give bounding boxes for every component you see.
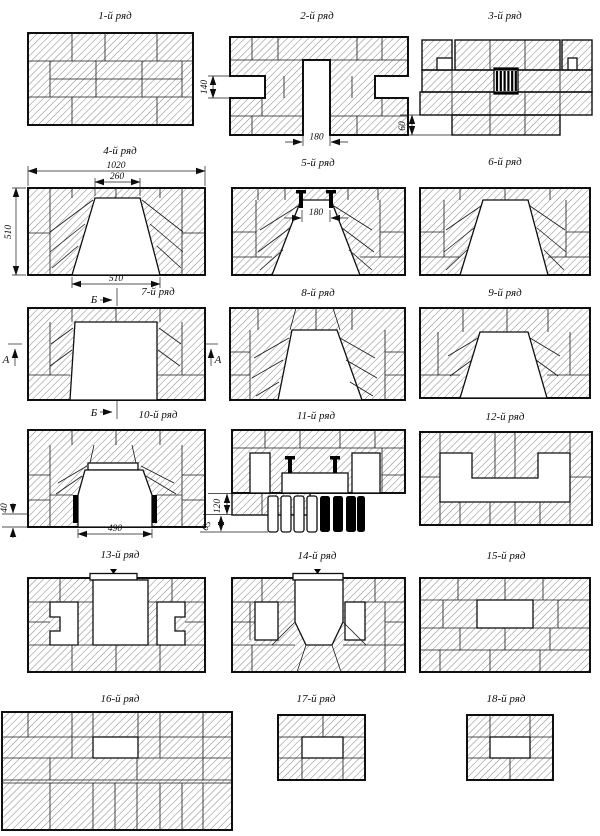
- row-5-panel: 5-й ряд 180: [232, 157, 405, 275]
- dim-140: 140: [200, 76, 230, 98]
- dim-40-text: 40: [0, 503, 10, 513]
- row-13-panel: 13-й ряд: [28, 549, 205, 672]
- row-7-panel: 7-й ряд Б Б А А: [2, 286, 222, 419]
- row-7-opening: [70, 322, 157, 400]
- black-bar: [333, 496, 343, 532]
- anchor-pin: [330, 456, 340, 460]
- section-mark-b-bottom: Б: [90, 400, 117, 419]
- section-a-right-text: А: [214, 354, 222, 366]
- row-15-panel: 15-й ряд: [420, 550, 590, 672]
- white-bar: [281, 496, 291, 532]
- row-16-body: [2, 712, 232, 830]
- dim-60-text: 60: [398, 121, 408, 131]
- dim-180-pins-text: 180: [309, 208, 324, 218]
- row-6-label: 6-й ряд: [488, 156, 522, 168]
- row-13-label: 13-й ряд: [101, 549, 140, 561]
- row-3-panel: 3-й ряд 60: [395, 10, 592, 135]
- row-16-label: 16-й ряд: [101, 693, 140, 705]
- anchor-pin: [288, 459, 292, 473]
- dim-140-text: 140: [200, 80, 210, 95]
- row-12-panel: 12-й ряд: [420, 411, 592, 525]
- masonry-order-drawing: 1-й ряд 2-й ряд 140 180 3-й ряд 60 4-й р…: [0, 0, 600, 836]
- row-18-label: 18-й ряд: [487, 693, 526, 705]
- row-10-panel: 10-й ряд 40 490: [0, 409, 205, 538]
- row-11-panel: 11-й ряд 120 65: [200, 410, 405, 533]
- row-17-opening: [302, 737, 343, 758]
- section-mark-a-left: А: [2, 344, 22, 366]
- row-10-label: 10-й ряд: [139, 409, 178, 421]
- dim-120-text: 120: [213, 499, 223, 514]
- row-2-panel: 2-й ряд 140 180: [200, 10, 408, 146]
- white-bar: [294, 496, 304, 532]
- row-18-panel: 18-й ряд: [467, 693, 553, 780]
- row-10-lintel-slot: [88, 463, 138, 470]
- row-14-panel: 14-й ряд: [232, 550, 405, 672]
- section-a-left-text: А: [2, 354, 10, 366]
- row-16-opening: [93, 737, 138, 758]
- row-3-label: 3-й ряд: [487, 10, 522, 22]
- row-16-panel: 16-й ряд: [2, 693, 232, 830]
- row-12-label: 12-й ряд: [486, 411, 525, 423]
- row-18-opening: [490, 737, 530, 758]
- white-bar: [307, 496, 317, 532]
- section-b-top-text: Б: [90, 294, 98, 306]
- row-3-grate: [494, 68, 518, 94]
- dim-120: 120: [203, 494, 232, 515]
- row-10-bar-left: [73, 495, 78, 523]
- row-8-label: 8-й ряд: [301, 287, 335, 299]
- row-14-label: 14-й ряд: [298, 550, 337, 562]
- row-2-label: 2-й ряд: [300, 10, 334, 22]
- row-11-bars: [268, 496, 365, 532]
- row-11-opening-center: [282, 473, 348, 493]
- row-10-bar-right: [152, 495, 157, 523]
- row-3-notch-left: [437, 58, 452, 70]
- white-bar: [268, 496, 278, 532]
- dim-260-text: 260: [110, 172, 125, 182]
- row-14-steel-strip: [293, 574, 343, 581]
- row-13-opening-center: [93, 580, 148, 645]
- black-bar: [320, 496, 330, 532]
- row-4-panel: 4-й ряд 1020 260 510 510: [4, 145, 205, 288]
- dim-40: 40: [0, 503, 28, 538]
- row-14-channel-left: [255, 602, 278, 640]
- row-8-panel: 8-й ряд: [230, 287, 405, 400]
- anchor-pin: [326, 190, 336, 194]
- dim-65: 65: [200, 516, 268, 533]
- dim-490-text: 490: [108, 524, 123, 534]
- anchor-pin: [329, 193, 333, 208]
- row-17-label: 17-й ряд: [297, 693, 336, 705]
- row-3-band-low: [420, 92, 592, 115]
- black-bar: [357, 496, 365, 532]
- row-9-label: 9-й ряд: [488, 287, 522, 299]
- dim-180-text: 180: [309, 133, 324, 143]
- dim-510h-text: 510: [4, 225, 14, 240]
- dim-510-height: 510: [4, 188, 26, 275]
- row-3-notch-right: [568, 58, 577, 70]
- section-b-bottom-text: Б: [90, 407, 98, 419]
- anchor-pin: [285, 456, 295, 460]
- anchor-pin: [333, 459, 337, 473]
- row-9-panel: 9-й ряд: [420, 287, 590, 398]
- row-14-opening-center: [295, 580, 343, 645]
- anchor-pin: [296, 190, 306, 194]
- row-3-band-bottom: [452, 115, 560, 135]
- row-15-label: 15-й ряд: [487, 550, 526, 562]
- row-3-block-top: [455, 40, 560, 70]
- dim-510w-text: 510: [109, 274, 124, 284]
- anchor-pin: [299, 193, 303, 208]
- row-11-opening-right: [352, 453, 380, 493]
- row-17-panel: 17-й ряд: [278, 693, 365, 780]
- row-5-label: 5-й ряд: [301, 157, 335, 169]
- row-6-panel: 6-й ряд: [420, 156, 590, 275]
- section-mark-a-right: А: [204, 344, 222, 366]
- black-bar: [346, 496, 356, 532]
- row-10-opening: [78, 470, 152, 527]
- row-13-steel-strip: [90, 574, 137, 581]
- row-4-label: 4-й ряд: [103, 145, 137, 157]
- row-11-label: 11-й ряд: [297, 410, 336, 422]
- row-2-body: [230, 37, 408, 135]
- row-15-opening: [477, 600, 533, 628]
- row-7-label: 7-й ряд: [141, 286, 175, 298]
- row-11-opening-left: [250, 453, 270, 493]
- section-mark-b-top: Б: [90, 288, 117, 306]
- masonry-order-sheet: 1-й ряд 2-й ряд 140 180 3-й ряд 60 4-й р…: [0, 0, 600, 836]
- row-1-label: 1-й ряд: [98, 10, 132, 22]
- row-1-panel: 1-й ряд: [28, 10, 193, 125]
- dim-1020-text: 1020: [107, 161, 126, 171]
